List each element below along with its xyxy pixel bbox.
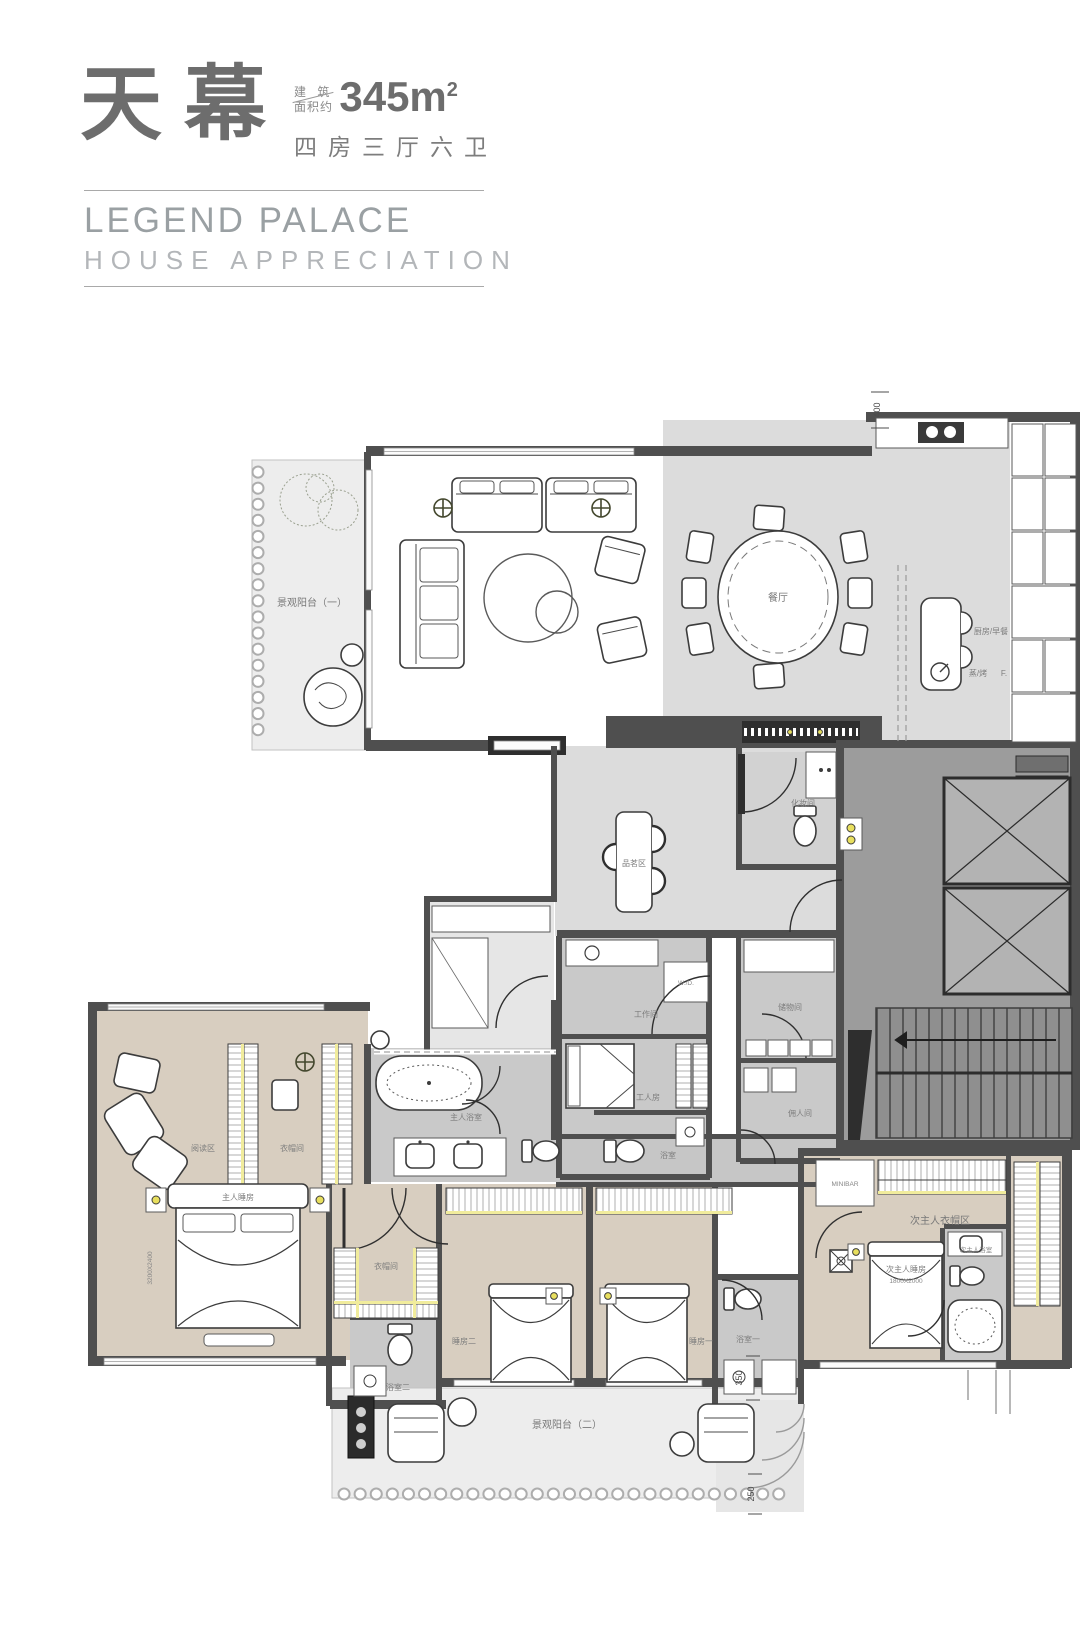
toilet-master xyxy=(522,1140,559,1162)
label-kitchen: 厨房/早餐 xyxy=(974,626,1008,636)
label-steam-bake: 蒸/烤 xyxy=(969,668,987,678)
label-bedroom1: 睡房一 xyxy=(689,1336,713,1346)
elevator-shaft-2 xyxy=(944,888,1070,994)
area-block: 建 筑 面积约 345m2 四房三厅六卫 xyxy=(294,78,498,162)
header: 天幕 建 筑 面积约 345m2 四房三厅六卫 LEGEND PALACE HO… xyxy=(80,60,540,287)
label-washer-dryer: W./D. xyxy=(678,980,694,987)
kitchen-pantry-column xyxy=(1012,424,1076,742)
bbq-grill xyxy=(348,1396,374,1458)
subtitle-line2: HOUSE APPRECIATION xyxy=(84,245,540,276)
label-second-master-closet: 次主人衣帽区 xyxy=(910,1214,970,1227)
label-master-bed-size: 3200X2400 xyxy=(147,1251,154,1285)
subtitle-line1: LEGEND PALACE xyxy=(84,201,540,241)
divider-top xyxy=(84,190,484,191)
label-master-bedroom: 主人睡房 xyxy=(222,1192,254,1202)
dim-top-right: 400 xyxy=(872,402,882,417)
label-minibar: MINIBAR xyxy=(831,1181,858,1188)
vanity xyxy=(394,1138,506,1176)
kitchen-sink xyxy=(918,422,964,443)
staircase xyxy=(876,1008,1072,1138)
layout-spec: 四房三厅六卫 xyxy=(294,128,498,162)
dim-250: 250 xyxy=(746,1486,756,1501)
floor-plan-drawing: 景观阳台（一） 餐厅 厨房/早餐 蒸/烤 F. 品茗区 化妆间 储物间 佣人间 … xyxy=(0,380,1080,1631)
label-staff-room: 工人房 xyxy=(636,1092,660,1102)
label-staff-bath: 浴室 xyxy=(660,1150,676,1160)
area-label-line2: 面积约 xyxy=(294,100,333,115)
label-closet2: 衣帽间 xyxy=(374,1261,398,1271)
utility-counter xyxy=(566,940,658,966)
label-second-master-bed-size: 1800X2000 xyxy=(889,1278,923,1285)
storage-cabinet xyxy=(744,940,834,972)
area-superscript: 2 xyxy=(447,79,458,101)
label-reading-area: 阅读区 xyxy=(191,1143,215,1153)
column-symbol-1 xyxy=(434,499,452,517)
ceiling-symbol xyxy=(296,1053,314,1071)
sofa-top-1 xyxy=(452,478,542,532)
corridor-shelf xyxy=(840,818,862,850)
label-second-master-bedroom: 次主人睡房 xyxy=(886,1264,926,1274)
label-master-bath: 主人浴室 xyxy=(450,1112,482,1122)
label-balcony1: 景观阳台（一） xyxy=(277,596,347,609)
area-prefix: 建 筑 面积约 xyxy=(294,84,333,116)
label-master-closet: 衣帽间 xyxy=(280,1143,304,1153)
toilet-bath2 xyxy=(388,1324,412,1365)
label-powder-room: 化妆间 xyxy=(791,798,815,808)
label-fridge: F. xyxy=(1001,669,1007,678)
divider-bottom xyxy=(84,286,484,287)
dim-350: 350 xyxy=(734,1370,744,1385)
area-value: 345m2 xyxy=(339,78,458,116)
toilet-staff xyxy=(604,1140,644,1162)
label-bath2: 浴室二 xyxy=(386,1382,410,1392)
label-bedroom2: 睡房二 xyxy=(452,1336,476,1346)
bathtub xyxy=(376,1056,482,1110)
label-utility: 工作间 xyxy=(634,1009,658,1019)
powder-cabinet xyxy=(806,752,836,798)
label-maid-room: 佣人间 xyxy=(788,1108,812,1118)
area-number: 345m xyxy=(339,73,446,120)
elevator-shaft-1 xyxy=(944,778,1070,884)
toilet-secbath xyxy=(950,1266,984,1286)
sofa-top-2 xyxy=(546,478,636,532)
label-second-master-bath: 次主人浴室 xyxy=(960,1245,993,1254)
label-tea-area: 品茗区 xyxy=(622,858,646,868)
label-bath1: 浴室一 xyxy=(736,1334,760,1344)
sofa-left xyxy=(400,540,464,668)
floor-plan-poster: { "header": { "title": "天幕", "area_label… xyxy=(0,0,1080,1631)
label-dining: 餐厅 xyxy=(768,591,788,604)
label-storage: 储物间 xyxy=(778,1002,802,1012)
page-title: 天幕 xyxy=(80,60,288,150)
toilet-powder xyxy=(794,806,816,846)
label-balcony2: 景观阳台（二） xyxy=(532,1418,602,1431)
armchair-2 xyxy=(596,616,647,664)
column-symbol-2 xyxy=(592,499,610,517)
